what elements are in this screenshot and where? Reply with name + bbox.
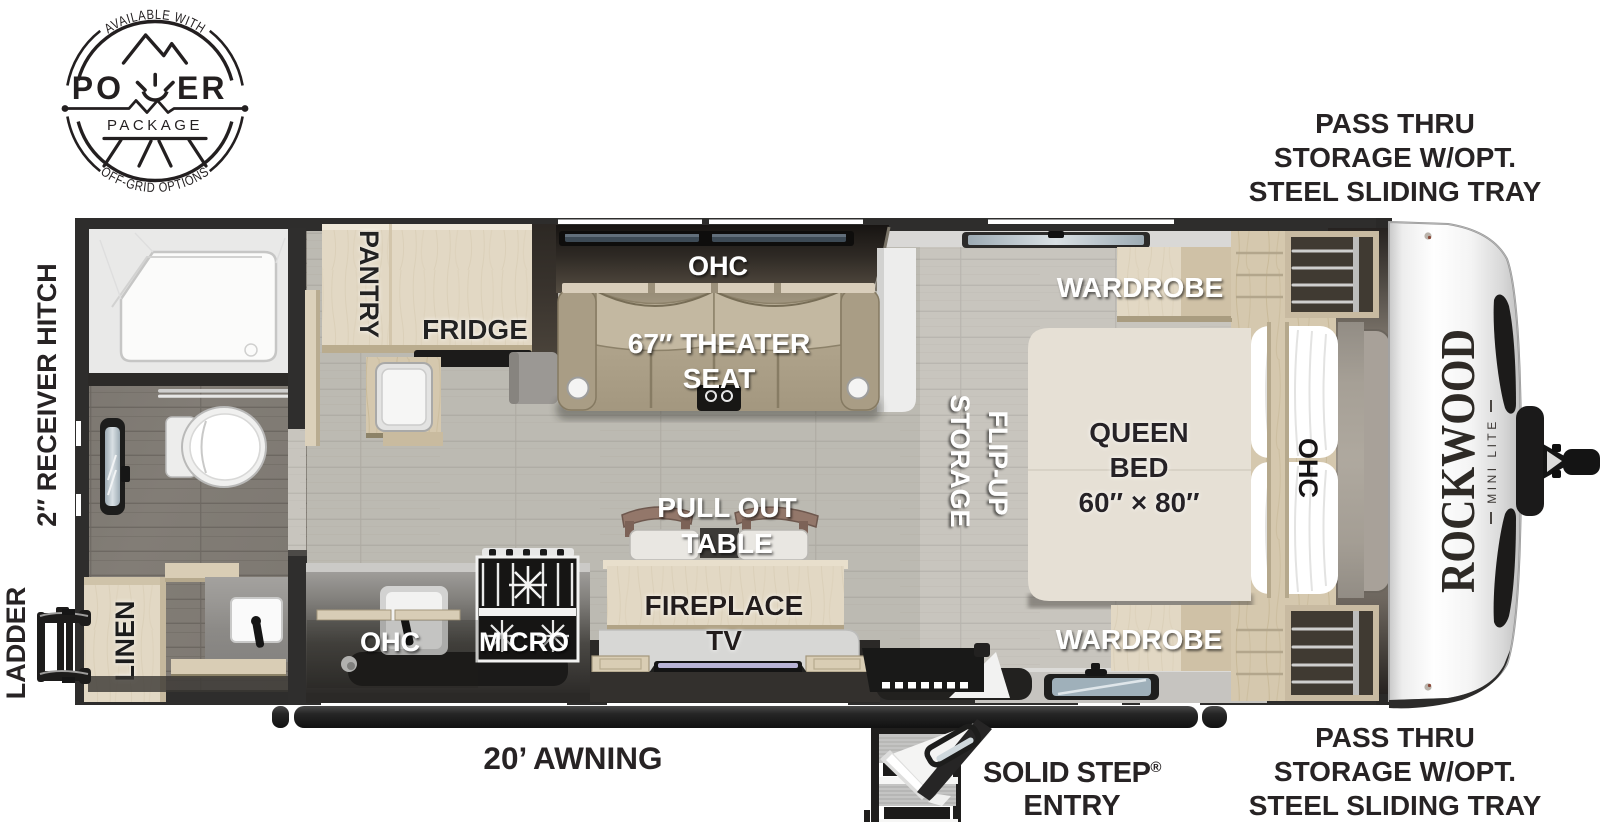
svg-text:PASS THRU: PASS THRU [1315, 722, 1475, 753]
svg-text:STORAGE W/OPT.: STORAGE W/OPT. [1274, 142, 1516, 173]
svg-text:LADDER: LADDER [1, 587, 31, 700]
svg-text:OHC: OHC [1293, 438, 1323, 498]
svg-text:FIREPLACE: FIREPLACE [645, 590, 804, 621]
svg-text:QUEEN: QUEEN [1089, 417, 1189, 448]
svg-text:67″ THEATER: 67″ THEATER [628, 328, 810, 359]
svg-text:OHC: OHC [688, 251, 748, 281]
svg-text:STEEL SLIDING TRAY: STEEL SLIDING TRAY [1249, 790, 1542, 821]
svg-text:MICRO: MICRO [479, 627, 569, 657]
svg-text:WARDROBE: WARDROBE [1057, 272, 1223, 303]
svg-text:ENTRY: ENTRY [1023, 790, 1120, 822]
svg-text:SOLID STEP®: SOLID STEP® [983, 757, 1161, 789]
svg-text:LINEN: LINEN [110, 601, 140, 682]
svg-text:OHC: OHC [360, 627, 420, 657]
svg-text:PO: PO [72, 70, 124, 106]
svg-text:BED: BED [1109, 452, 1168, 483]
svg-text:STEEL SLIDING TRAY: STEEL SLIDING TRAY [1249, 176, 1542, 207]
svg-text:20’ AWNING: 20’ AWNING [483, 740, 662, 776]
svg-text:FRIDGE: FRIDGE [422, 314, 528, 345]
svg-text:SEAT: SEAT [683, 363, 756, 394]
svg-text:PULL OUT: PULL OUT [657, 492, 796, 523]
svg-text:WARDROBE: WARDROBE [1056, 624, 1222, 655]
svg-text:STORAGE: STORAGE [945, 394, 975, 527]
svg-text:PASS THRU: PASS THRU [1315, 108, 1475, 139]
svg-text:2″ RECEIVER HITCH: 2″ RECEIVER HITCH [32, 263, 62, 526]
svg-text:PACKAGE: PACKAGE [107, 117, 203, 134]
svg-text:ROCKWOOD: ROCKWOOD [1430, 329, 1485, 593]
svg-text:FLIP-UP: FLIP-UP [983, 411, 1013, 516]
svg-text:TV: TV [706, 625, 742, 656]
svg-text:ER: ER [177, 70, 227, 106]
svg-text:PANTRY: PANTRY [354, 230, 384, 338]
svg-text:TABLE: TABLE [681, 528, 772, 559]
svg-text:60″ × 80″: 60″ × 80″ [1078, 487, 1199, 518]
svg-text:STORAGE W/OPT.: STORAGE W/OPT. [1274, 756, 1516, 787]
svg-text:MINI LITE: MINI LITE [1485, 418, 1499, 504]
